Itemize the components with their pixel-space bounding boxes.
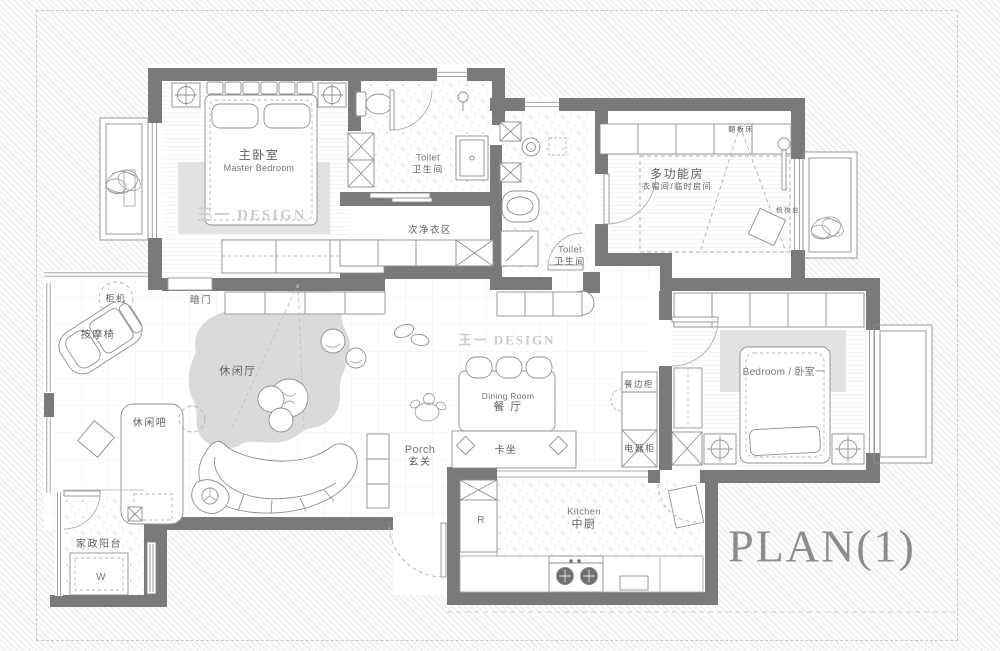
label-hidden-door: 暗门	[190, 295, 212, 307]
label-ac-unit: 柜机	[105, 294, 126, 305]
label-porch: Porch 玄关	[405, 444, 435, 470]
wardrobe-row	[600, 124, 791, 154]
corner-cabinet	[672, 368, 702, 465]
floor-plan-sheet: 主卧室 Master Bedroom Toilet 卫生间 次净衣区 暗门 柜机…	[0, 0, 1000, 651]
label-appliance-cabinet: 电器柜	[624, 444, 656, 455]
label-lounge-bar: 休闲吧	[133, 418, 168, 430]
nightstand-left	[704, 434, 736, 464]
window-balcony-west	[55, 492, 63, 596]
label-sideboard: 餐边柜	[624, 379, 654, 389]
closet-area-furniture	[340, 240, 493, 266]
label-service-balcony: 家政阳台	[76, 539, 122, 551]
label-fridge: R	[477, 515, 485, 527]
label-dining-room: Dining Room 餐 厅	[482, 391, 534, 415]
label-massage-chair: 按摩椅	[81, 330, 116, 342]
nightstand-left	[172, 83, 200, 107]
vanity-sink	[456, 136, 488, 180]
nightstand-right	[832, 434, 864, 464]
label-multi-function-room: 多功能房 衣帽间/临时房间	[642, 167, 712, 191]
watermark-text-2: 王一 DESIGN	[458, 330, 555, 349]
window-northwest	[44, 270, 148, 279]
label-flip-bed: 翻板床	[728, 127, 754, 136]
label-hall-toilet: Toilet 卫生间	[554, 245, 586, 268]
label-washer: W	[96, 572, 106, 584]
dining-chairs	[466, 357, 552, 378]
bathtub	[502, 191, 539, 222]
drain-icon	[128, 507, 142, 521]
label-booth-seat: 卡坐	[495, 445, 518, 457]
label-lounge: 休闲厅	[219, 365, 257, 378]
window-wing-top	[525, 98, 559, 111]
sink-box	[620, 576, 648, 590]
label-closet-area: 次净衣区	[408, 225, 452, 237]
window-west-upper	[44, 283, 53, 392]
plan-title: PLAN(1)	[728, 520, 916, 573]
stove	[549, 556, 603, 592]
label-dressing-table: 梳妆台	[776, 207, 800, 215]
bed	[740, 347, 830, 463]
laundry-cabinet	[348, 133, 374, 187]
window-bedroom-bay-opening	[866, 330, 880, 453]
shower-tray	[501, 231, 538, 266]
window-top-toilet	[437, 68, 467, 81]
watermark-text-1: 王一 DESIGN	[197, 204, 306, 225]
hidden-door-leaf	[168, 278, 212, 290]
label-master-bedroom: 主卧室 Master Bedroom	[224, 148, 295, 174]
nightstand-right	[318, 83, 346, 107]
tv-cabinet-row	[225, 292, 385, 314]
shoe-cabinet	[367, 434, 389, 508]
window-master-bay-opening	[148, 123, 162, 238]
label-bedroom-one: Bedroom / 卧室一	[743, 367, 826, 379]
label-master-toilet: Toilet 卫生间	[412, 153, 444, 176]
hall-cabinet-row	[497, 292, 582, 316]
toilet-fixture-icon	[356, 92, 392, 116]
label-kitchen: Kitchen 中厨	[567, 507, 601, 532]
radiator	[147, 542, 156, 594]
window-west-lower	[44, 417, 53, 493]
